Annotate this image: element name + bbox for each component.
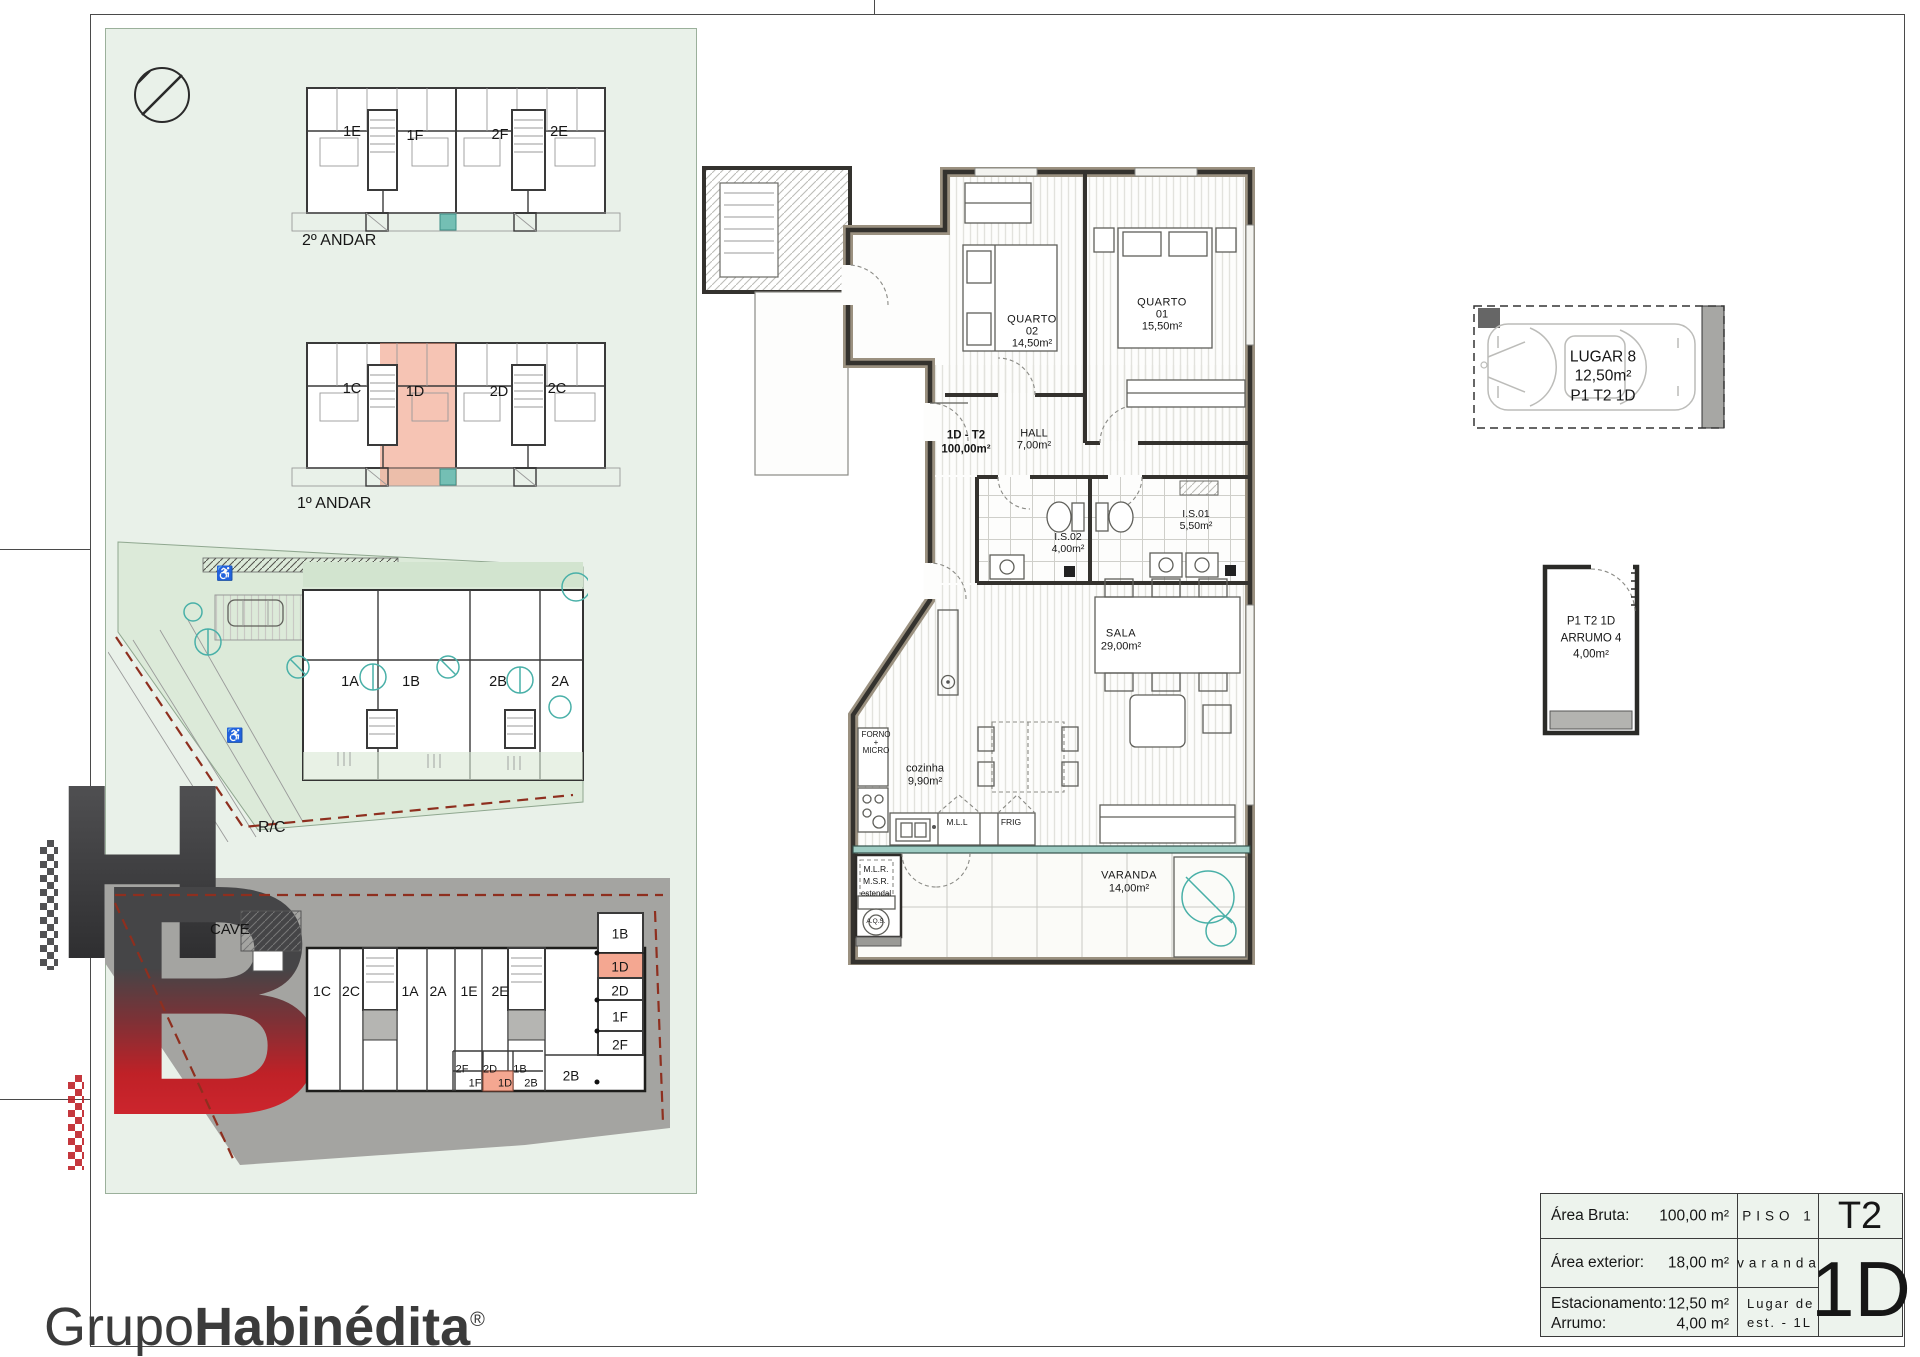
field-value-estacionamento: 12,50 m² <box>1668 1296 1729 1312</box>
appliance-label-estendal: estendal <box>861 890 891 898</box>
room-label-cozinha: cozinha <box>906 764 944 775</box>
room-area-is02: 4,00m² <box>1052 544 1085 555</box>
room-label-varanda: VARANDA <box>1101 871 1157 882</box>
appliance-label-msr: M.S.R. <box>863 877 889 886</box>
room-label: 2B <box>563 1069 580 1083</box>
cell-label: 2F <box>456 1065 469 1076</box>
unit-label: 1D <box>406 385 425 400</box>
unit-id-label: 1D - T2 <box>947 430 985 442</box>
storage-label-area: 4,00m² <box>1573 649 1609 661</box>
cell-label-highlighted: 1D <box>498 1079 512 1090</box>
storage-unit-label: 2E <box>491 984 508 998</box>
logo-wordmark: GrupoHabinédita® <box>44 1300 485 1354</box>
field-label-estacionamento: Estacionamento: <box>1551 1296 1666 1312</box>
storage-unit-label: 2C <box>342 984 360 998</box>
apartment-floor-plan-1d <box>680 165 1255 965</box>
floor-label: 2º ANDAR <box>302 233 376 249</box>
unit-label: 1B <box>402 675 420 690</box>
accessibility-icon: ♿ <box>216 565 233 582</box>
frame-tick-top <box>874 0 875 14</box>
field-lugar-line1: Lugar de <box>1747 1297 1814 1310</box>
drawing-sheet: { "panel": { "floors": { "second": {"lab… <box>0 0 1920 1357</box>
appliance-label-mll: M.L.L <box>946 818 967 827</box>
type-code: T2 <box>1838 1197 1882 1235</box>
appliance-label-micro: MICRO <box>863 747 890 755</box>
room-label-quarto01: QUARTO <box>1137 298 1187 309</box>
storage-unit-label: 1E <box>460 984 477 998</box>
appliance-label-mlr: M.L.R. <box>863 865 888 874</box>
room-area-quarto02: 14,50m² <box>1012 339 1052 350</box>
room-area-quarto01: 15,50m² <box>1142 322 1182 333</box>
storage-unit-label: 1C <box>313 984 331 998</box>
unit-label: 2F <box>492 128 509 143</box>
room-label-hall: HALL <box>1020 429 1048 440</box>
logo-name-bold: Habinédita <box>194 1297 470 1357</box>
room-label-is02: I.S.02 <box>1054 532 1081 543</box>
north-arrow-icon <box>128 61 194 127</box>
unit-code: 1D <box>1811 1250 1911 1328</box>
unit-label: 1F <box>407 129 424 144</box>
room-area-sala: 29,00m² <box>1101 642 1141 653</box>
floor-plan-1st-floor <box>228 338 628 508</box>
field-varanda: varanda <box>1737 1256 1821 1270</box>
storage-unit-label: 1A <box>401 984 418 998</box>
unit-label: 2D <box>490 385 509 400</box>
storage-label-unit: P1 T2 1D <box>1567 616 1615 628</box>
basement-plan <box>105 873 675 1173</box>
legend-label: 1F <box>612 1010 628 1024</box>
legend-label: 2F <box>612 1038 628 1052</box>
logo-pixel-strip-red <box>68 1075 84 1170</box>
room-area-varanda: 14,00m² <box>1109 884 1149 895</box>
room-label-sala: SALA <box>1106 629 1136 640</box>
field-label-area-exterior: Área exterior: <box>1551 1255 1644 1271</box>
frame-tick-left-1 <box>0 549 90 550</box>
unit-label: 2B <box>489 675 507 690</box>
legend-label: 1B <box>612 927 629 941</box>
legend-label: 2D <box>611 984 628 998</box>
field-label-arrumo: Arrumo: <box>1551 1316 1606 1332</box>
unit-area-label: 100,00m² <box>941 444 990 456</box>
storage-label-name: ARRUMO 4 <box>1561 633 1622 645</box>
legend-label-highlighted: 1D <box>611 960 628 974</box>
floor-label: CAVE <box>210 922 250 937</box>
parking-label-unit: P1 T2 1D <box>1570 388 1635 404</box>
floor-label: 1º ANDAR <box>297 496 371 512</box>
room-label-quarto02-num: 02 <box>1026 327 1038 338</box>
room-label-is01: I.S.01 <box>1182 509 1209 520</box>
field-value-area-exterior: 18,00 m² <box>1668 1255 1729 1271</box>
room-area-cozinha: 9,90m² <box>908 777 942 788</box>
unit-label: 2A <box>551 675 569 690</box>
title-block-hline-1 <box>1540 1238 1903 1239</box>
parking-label-lugar: LUGAR 8 <box>1570 349 1636 365</box>
unit-label: 1A <box>341 675 359 690</box>
cell-label: 1B <box>513 1065 526 1076</box>
field-piso: PISO 1 <box>1742 1209 1816 1223</box>
field-label-area-bruta: Área Bruta: <box>1551 1208 1629 1224</box>
cell-label: 1F <box>469 1079 482 1090</box>
field-value-arrumo: 4,00 m² <box>1676 1316 1729 1332</box>
title-block-hline-2 <box>1540 1287 1818 1288</box>
storage-unit-label: 2A <box>429 984 446 998</box>
unit-label: 1C <box>343 382 362 397</box>
logo-name-light: Grupo <box>44 1297 194 1357</box>
field-value-area-bruta: 100,00 m² <box>1659 1208 1729 1224</box>
room-label-quarto01-num: 01 <box>1156 310 1168 321</box>
room-label-quarto02: QUARTO <box>1007 315 1057 326</box>
field-lugar-line2: est. - 1L <box>1747 1316 1812 1329</box>
room-area-is01: 5,50m² <box>1180 521 1213 532</box>
unit-label: 1E <box>343 125 361 140</box>
unit-label: 2C <box>548 382 567 397</box>
room-area-hall: 7,00m² <box>1017 441 1051 452</box>
unit-label: 2E <box>550 125 568 140</box>
floor-plan-2nd-floor <box>228 83 628 253</box>
appliance-label-aqs: A.Q.S. <box>866 919 885 926</box>
parking-label-area: 12,50m² <box>1575 368 1632 384</box>
appliance-label-frig: FRIG <box>1001 818 1021 827</box>
cell-label: 2B <box>524 1079 537 1090</box>
registered-mark: ® <box>470 1309 485 1331</box>
cell-label: 2D <box>483 1065 497 1076</box>
